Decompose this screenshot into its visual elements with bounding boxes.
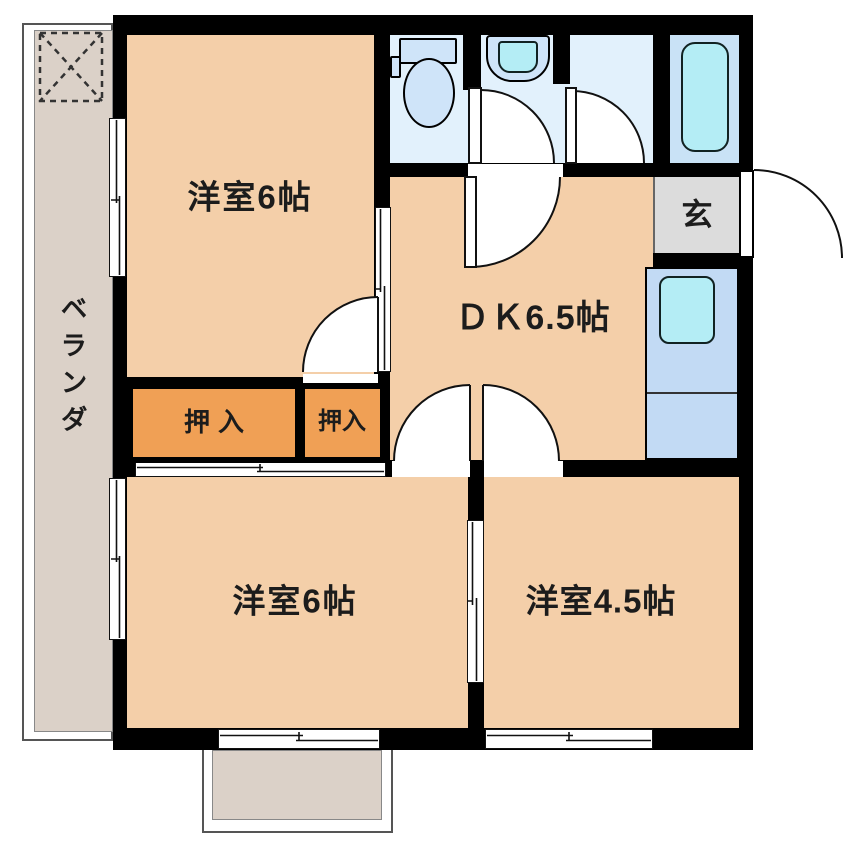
genkan-label: 玄 — [682, 200, 713, 231]
room-bottom-right-label: 洋室4.5帖 — [526, 585, 677, 618]
toilet-bowl — [403, 58, 455, 128]
door-dk-hall — [465, 177, 560, 267]
door-room3 — [394, 385, 470, 461]
door-room1 — [303, 297, 378, 372]
toilet-handle — [390, 56, 401, 78]
dk-label: ＤＫ6.5帖 — [455, 301, 610, 335]
door-room4 — [483, 385, 559, 461]
kitchen-counter-divider — [647, 392, 737, 394]
floor-plan: 洋室6帖 ＤＫ6.5帖 玄 押入 押入 洋室6帖 洋室4.5帖 ベランダ — [0, 0, 846, 846]
room-bottom-left-label: 洋室6帖 — [232, 585, 357, 618]
closet-left-label: 押入 — [176, 409, 252, 435]
veranda-label: ベランダ — [58, 294, 85, 442]
closet-right-label: 押入 — [318, 410, 366, 434]
door-washroom — [469, 88, 554, 163]
room-top-label: 洋室6帖 — [187, 181, 312, 214]
veranda-hatch-box — [40, 33, 102, 101]
door-changing-room — [566, 88, 644, 163]
bathtub — [681, 42, 729, 152]
door-entrance-swing — [754, 170, 842, 258]
washbasin-bowl — [498, 41, 538, 73]
kitchen-sink — [659, 276, 715, 344]
